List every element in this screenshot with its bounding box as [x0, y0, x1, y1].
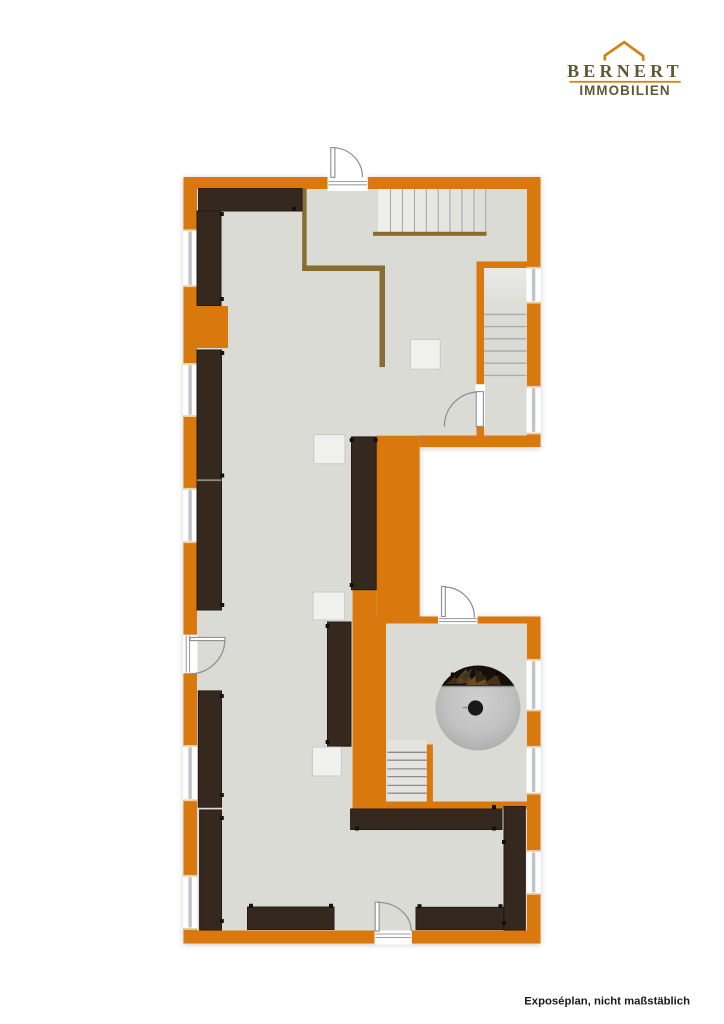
svg-text:BERNERT: BERNERT	[567, 61, 683, 81]
svg-text:Exposéplan, nicht maßstäblich: Exposéplan, nicht maßstäblich	[524, 996, 690, 1008]
svg-text:IMMOBILIEN: IMMOBILIEN	[579, 83, 670, 98]
